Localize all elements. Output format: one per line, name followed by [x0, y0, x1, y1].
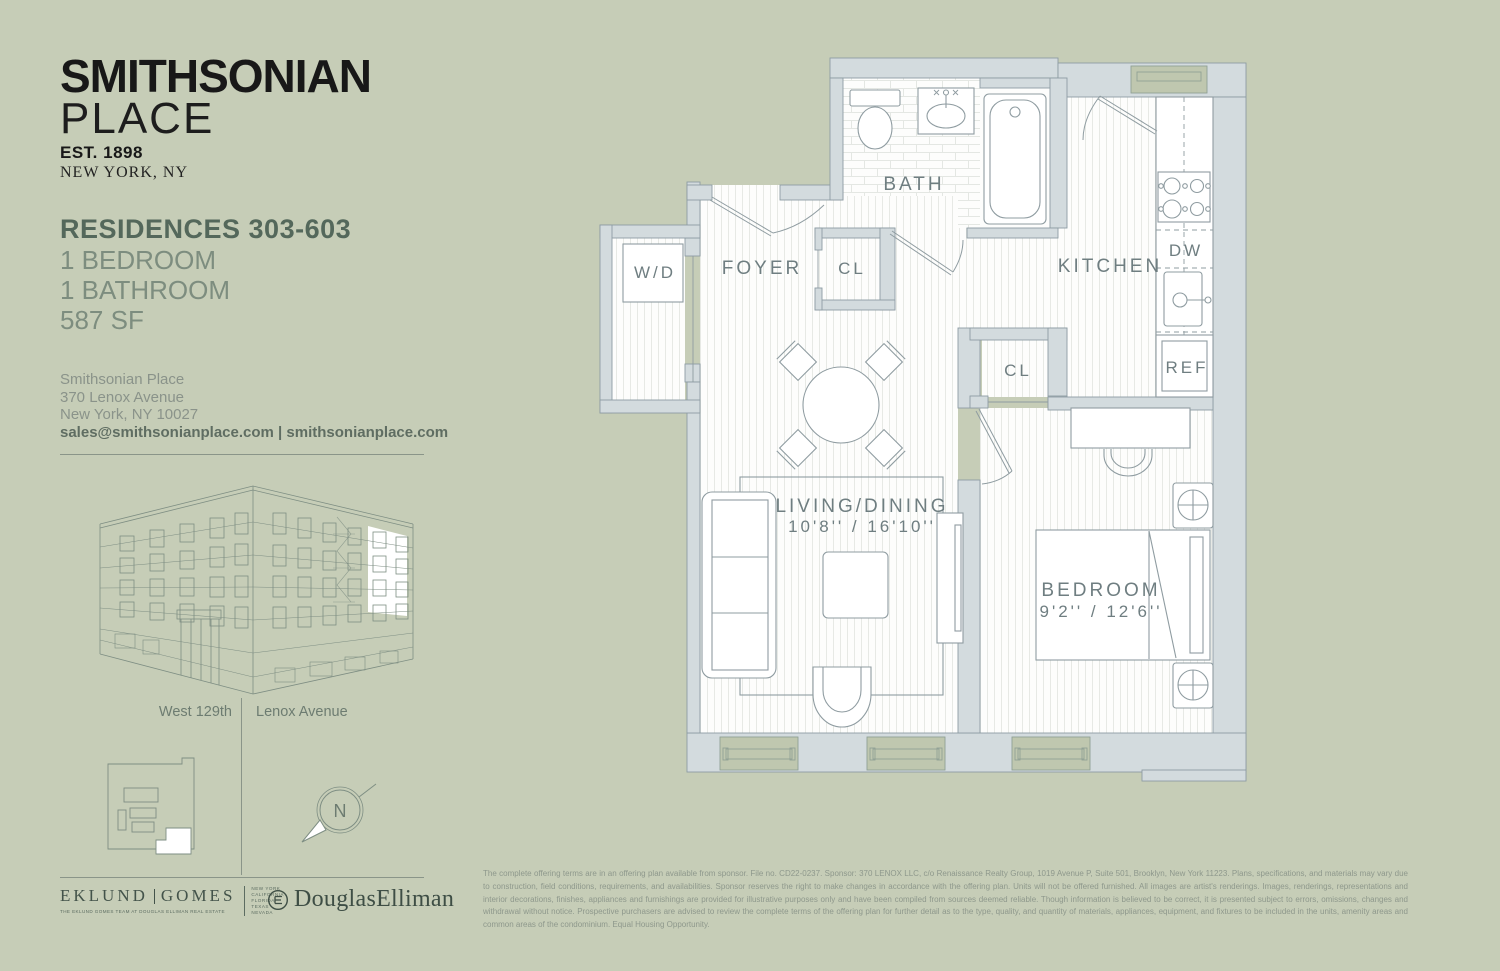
street-label-west-129th: West 129th: [60, 704, 232, 720]
label-dishwasher: DW: [1169, 241, 1203, 260]
eklund-gomes-divider: [154, 889, 155, 904]
contact-city: New York, NY 10027: [60, 406, 448, 424]
stove: [1158, 172, 1210, 222]
compass: N: [292, 772, 384, 854]
divider-bottom: [60, 877, 424, 878]
label-foyer: FOYER: [722, 258, 802, 279]
label-bedroom-closet: CL: [1004, 361, 1032, 380]
douglas-elliman-monogram-icon: [267, 889, 289, 911]
bedroom-window: [1012, 737, 1090, 770]
brand-name-top: SMITHSONIAN: [60, 53, 371, 99]
nightstand-top: [1173, 483, 1213, 528]
label-foyer-closet: CL: [838, 259, 866, 278]
compass-needle: [302, 820, 326, 842]
sofa: [702, 492, 776, 678]
label-refrigerator: REF: [1166, 358, 1209, 377]
floor-plan: BATH FOYER CL KITCHEN W/D DW REF CL LIVI…: [595, 40, 1255, 790]
nightstand-bottom: [1173, 663, 1213, 708]
label-bedroom: BEDROOM: [1041, 580, 1160, 601]
brand-established: EST. 1898: [60, 143, 371, 163]
label-bedroom-dims: 9'2'' / 12'6'': [1040, 602, 1163, 621]
dining-table: [803, 367, 879, 443]
site-plan: [98, 752, 218, 866]
brand-logo: SMITHSONIAN PLACE EST. 1898 NEW YORK, NY: [60, 53, 371, 182]
label-bath: BATH: [883, 174, 944, 195]
eklund-wordmark: EKLUND: [60, 886, 148, 906]
compass-north-label: N: [334, 801, 347, 821]
bathroom-sink: [918, 88, 974, 134]
residence-summary: RESIDENCES 303-603 1 BEDROOM 1 BATHROOM …: [60, 214, 351, 335]
building-illustration: [85, 462, 415, 702]
label-washer-dryer: W/D: [634, 263, 676, 282]
label-living-dining: LIVING/DINING: [775, 496, 948, 517]
desk: [1071, 408, 1190, 448]
coffee-table: [823, 552, 888, 618]
living-window-2: [867, 737, 945, 770]
residence-bedrooms: 1 BEDROOM: [60, 245, 351, 275]
contact-street: 370 Lenox Avenue: [60, 389, 448, 407]
gomes-wordmark: GOMES: [161, 886, 236, 906]
eklund-gomes-logo: EKLUND GOMES THE EKLUND GOMES TEAM AT DO…: [60, 886, 284, 916]
console-table: [937, 513, 963, 643]
divider-top: [60, 454, 424, 455]
douglas-elliman-wordmark: DouglasElliman: [294, 886, 454, 913]
floorplan-sheet: { "colors": { "background": "#c6cdb7", "…: [0, 0, 1500, 971]
armchair: [813, 667, 871, 727]
brand-location: NEW YORK, NY: [60, 164, 371, 182]
contact-name: Smithsonian Place: [60, 371, 448, 389]
living-window-1: [720, 737, 798, 770]
entrance-portico: [177, 610, 221, 685]
left-facade-windows: [120, 513, 248, 628]
bathtub: [984, 94, 1046, 224]
subject-building: [156, 828, 191, 854]
label-living-dims: 10'8'' / 16'10'': [788, 517, 936, 536]
residence-title: RESIDENCES 303-603: [60, 214, 351, 245]
contact-links: sales@smithsonianplace.com | smithsonian…: [60, 424, 448, 442]
residence-bathrooms: 1 BATHROOM: [60, 275, 351, 305]
contact-block: Smithsonian Place 370 Lenox Avenue New Y…: [60, 371, 448, 442]
offering-disclaimer: The complete offering terms are in an of…: [483, 868, 1408, 932]
brand-name-bottom: PLACE: [60, 99, 371, 139]
residence-area: 587 SF: [60, 305, 351, 335]
highlighted-unit-stack: [368, 526, 407, 616]
street-divider: [241, 698, 242, 875]
kitchen-window: [1131, 66, 1207, 93]
label-kitchen: KITCHEN: [1058, 256, 1162, 277]
douglas-elliman-logo: DouglasElliman: [267, 886, 454, 913]
street-label-lenox-avenue: Lenox Avenue: [256, 704, 348, 720]
eklund-gomes-tagline: THE EKLUND GOMES TEAM AT DOUGLAS ELLIMAN…: [60, 909, 235, 914]
